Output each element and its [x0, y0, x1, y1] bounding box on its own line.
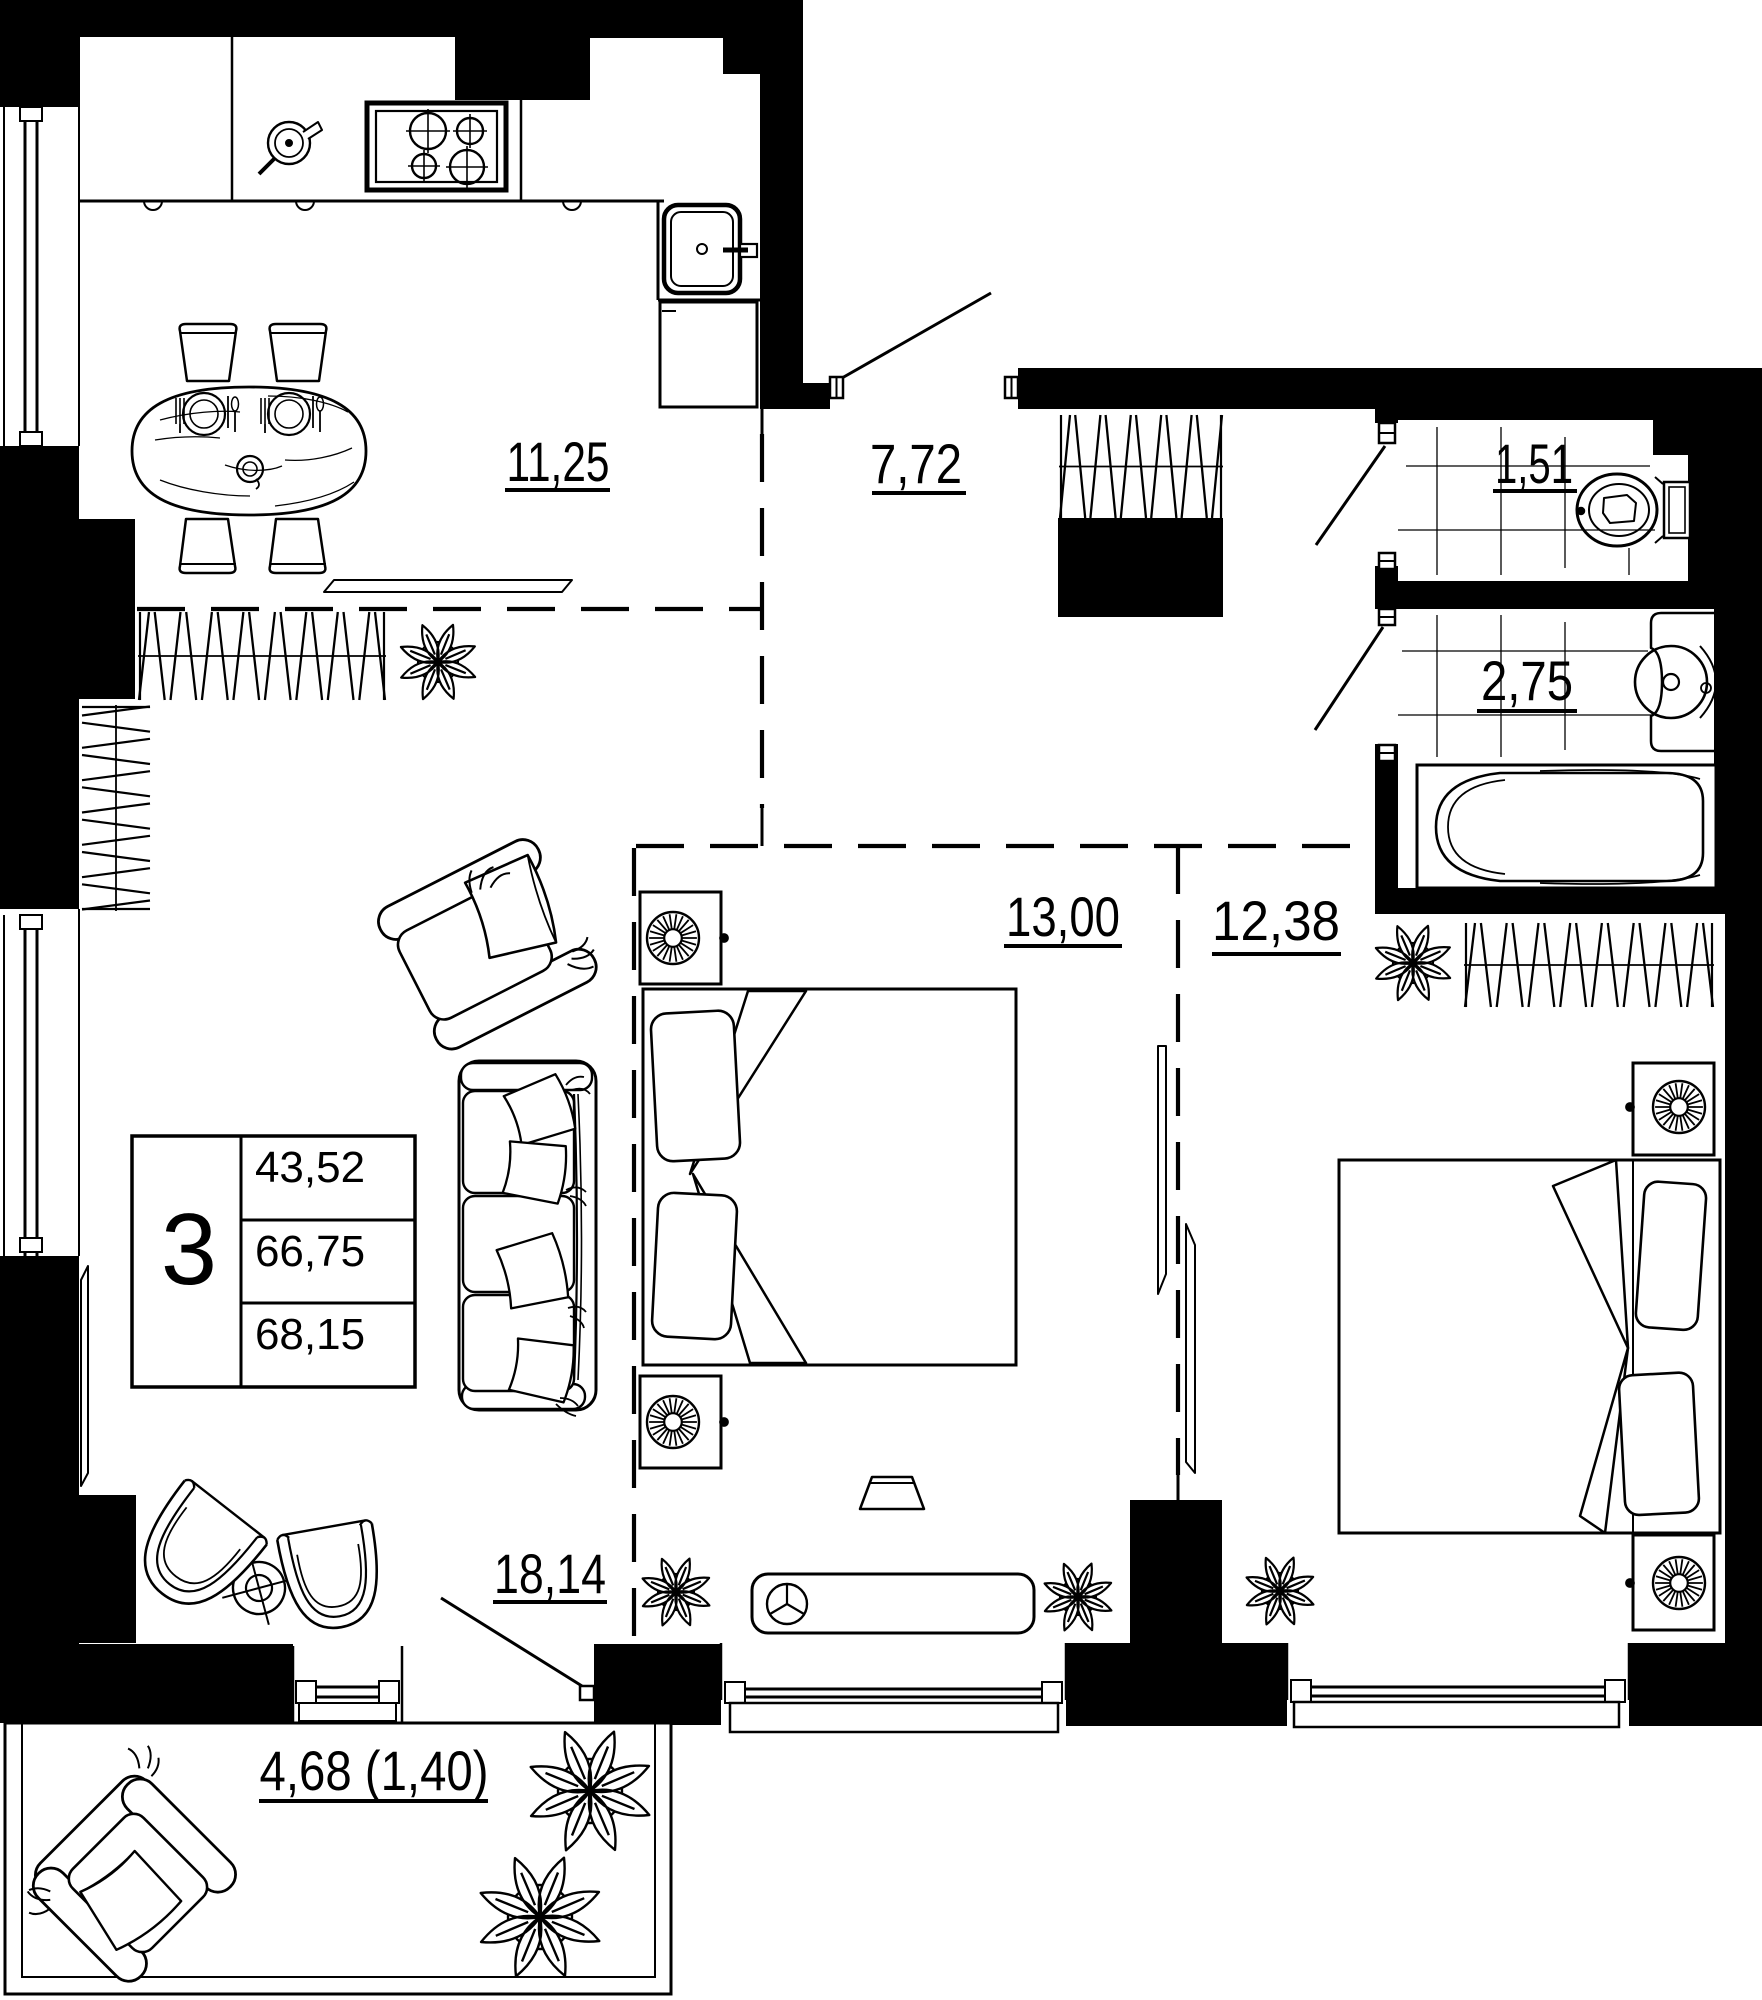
svg-text:66,75: 66,75	[255, 1227, 365, 1276]
svg-text:2,75: 2,75	[1481, 649, 1573, 712]
svg-text:12,38: 12,38	[1212, 889, 1340, 952]
svg-text:13,00: 13,00	[1006, 885, 1120, 948]
svg-text:3: 3	[161, 1194, 217, 1306]
svg-text:4,68 (1,40): 4,68 (1,40)	[260, 1739, 489, 1802]
svg-text:68,15: 68,15	[255, 1310, 365, 1359]
svg-text:11,25: 11,25	[507, 430, 610, 493]
svg-text:18,14: 18,14	[494, 1542, 606, 1605]
svg-text:1,51: 1,51	[1495, 432, 1573, 495]
svg-text:43,52: 43,52	[255, 1143, 365, 1192]
svg-text:7,72: 7,72	[870, 432, 962, 495]
